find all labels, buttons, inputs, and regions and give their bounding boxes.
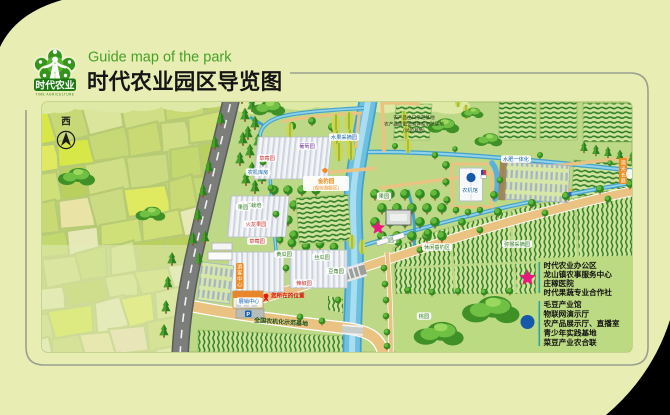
svg-text:时代农业园区导览图: 时代农业园区导览图 (87, 69, 282, 94)
svg-text:弥猴采摘园: 弥猴采摘园 (504, 240, 530, 248)
svg-text:展销中心: 展销中心 (239, 297, 260, 305)
svg-text:休闲垂钓区: 休闲垂钓区 (424, 243, 450, 251)
svg-text:水果采摘园: 水果采摘园 (331, 133, 357, 141)
svg-text:豆角园: 豆角园 (328, 267, 344, 275)
svg-text:龙山镇农事服务中心: 龙山镇农事服务中心 (543, 269, 613, 279)
svg-text:果园: 果园 (379, 193, 389, 200)
svg-text:农机库房: 农机库房 (248, 168, 269, 176)
svg-text:P: P (246, 312, 250, 318)
svg-text:火龙果园: 火龙果园 (246, 220, 267, 228)
svg-text:农产品质量追溯体系示范基地: 农产品质量追溯体系示范基地 (384, 121, 444, 128)
svg-text:桃园: 桃园 (419, 312, 429, 320)
svg-text:草莓园: 草莓园 (259, 154, 275, 162)
svg-text:时代农业办公区: 时代农业办公区 (544, 260, 598, 270)
svg-text:农产品出口示范基地: 农产品出口示范基地 (393, 114, 435, 121)
svg-text:物联网演示厅: 物联网演示厅 (544, 309, 590, 319)
svg-text:农机馆: 农机馆 (462, 186, 478, 194)
svg-text:草莓园: 草莓园 (249, 237, 265, 245)
svg-text:果园: 果园 (238, 204, 248, 211)
svg-text:青少年实践基地: 青少年实践基地 (544, 328, 598, 338)
svg-text:农产品展示厅、直播室: 农产品展示厅、直播室 (543, 318, 620, 328)
svg-text:毛豆产业馆: 毛豆产业馆 (544, 299, 582, 309)
svg-text:黄瓜园: 黄瓜园 (276, 250, 292, 258)
svg-text:葡萄园: 葡萄园 (299, 142, 315, 150)
svg-text:丝瓜园: 丝瓜园 (314, 253, 330, 261)
svg-text:您所在的位置: 您所在的位置 (271, 292, 305, 300)
svg-text:庄稼医院: 庄稼医院 (544, 278, 575, 288)
svg-text:水肥一体化: 水肥一体化 (503, 155, 529, 163)
svg-text:西: 西 (61, 117, 71, 128)
svg-text:Guide map of the park: Guide map of the park (88, 50, 232, 66)
svg-text:(观树游服区): (观树游服区) (313, 185, 339, 192)
svg-text:(试验基地): (试验基地) (403, 127, 425, 134)
svg-text:时代农业: 时代农业 (35, 79, 74, 92)
svg-text:游客中心: 游客中心 (237, 264, 242, 289)
svg-text:TIME AGRICULTURE: TIME AGRICULTURE (36, 93, 75, 97)
svg-text:观光长廊: 观光长廊 (621, 161, 626, 185)
svg-text:辣椒园: 辣椒园 (296, 279, 312, 287)
svg-text:时代果蔬专业合作社: 时代果蔬专业合作社 (544, 287, 613, 297)
svg-text:金豹园: 金豹园 (317, 177, 335, 185)
svg-text:菜豆产业农合联: 菜豆产业农合联 (543, 337, 598, 347)
